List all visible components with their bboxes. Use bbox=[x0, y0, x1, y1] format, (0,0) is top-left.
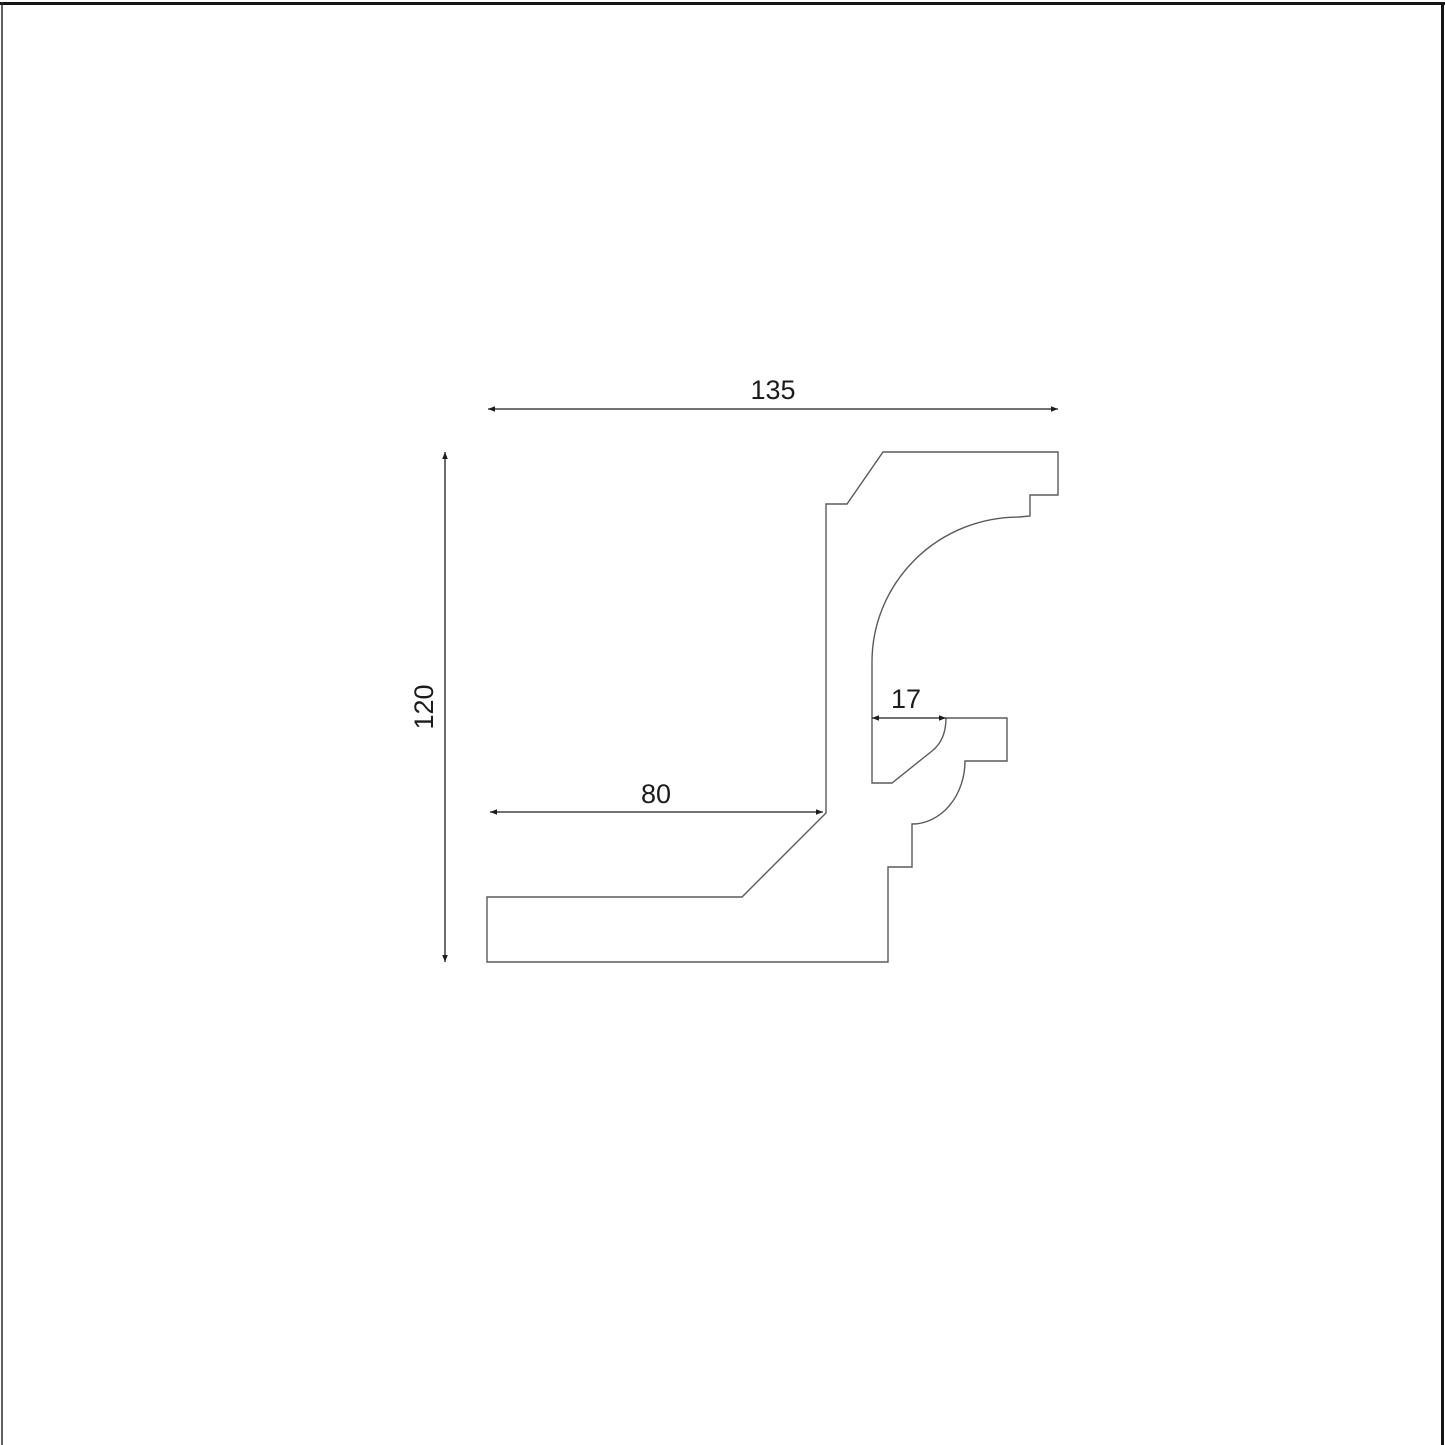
dimension-80: 80 bbox=[490, 779, 823, 812]
dimension-label-135: 135 bbox=[750, 375, 795, 405]
dimension-17: 17 bbox=[872, 684, 946, 718]
dimension-label-80: 80 bbox=[641, 779, 671, 809]
technical-drawing-canvas: 135 120 80 17 bbox=[0, 0, 1445, 1445]
molding-profile-outline bbox=[487, 452, 1058, 962]
dimension-label-17: 17 bbox=[891, 684, 921, 714]
dimension-135: 135 bbox=[488, 375, 1058, 409]
dimension-120: 120 bbox=[409, 452, 445, 962]
drawing-sheet: 135 120 80 17 bbox=[0, 0, 1445, 1445]
dimension-label-120: 120 bbox=[409, 684, 439, 729]
